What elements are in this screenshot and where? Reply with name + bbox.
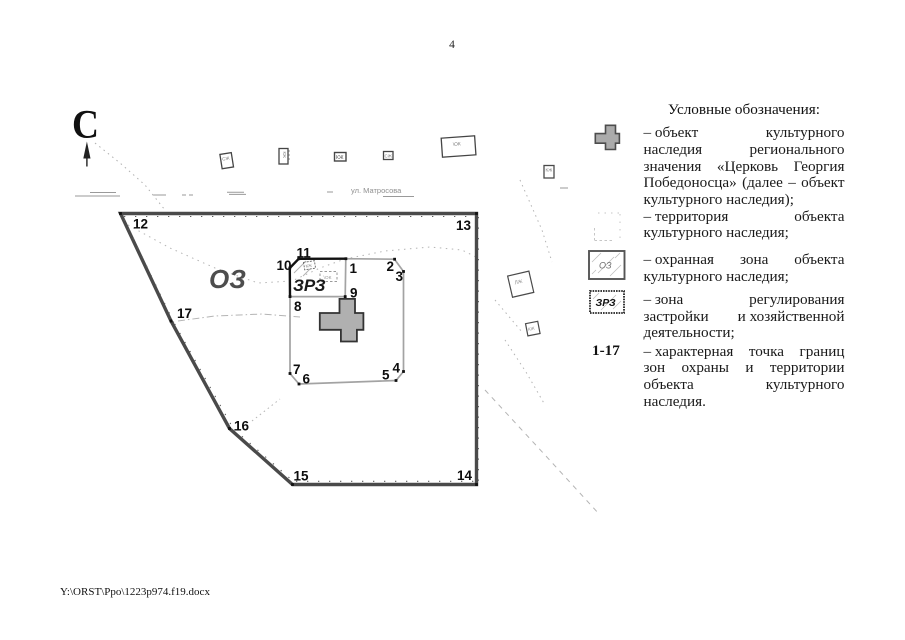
svg-text:\ОК: \ОК [453, 141, 461, 148]
svg-text:10: 10 [277, 258, 292, 273]
svg-text:ОЗ: ОЗ [209, 264, 246, 294]
svg-text:15: 15 [294, 469, 310, 484]
svg-text:11: 11 [297, 246, 312, 261]
svg-text:14: 14 [457, 468, 473, 483]
svg-text:4: 4 [393, 361, 401, 376]
svg-text:С: С [72, 102, 99, 147]
svg-text:8: 8 [294, 299, 302, 314]
svg-text:3: 3 [396, 269, 404, 284]
svg-text:ОЗ: ОЗ [599, 261, 612, 271]
svg-text:КЖ: КЖ [305, 263, 312, 269]
svg-text:13: 13 [456, 218, 472, 233]
svg-text:ул. Матросова: ул. Матросова [351, 186, 402, 195]
svg-text:9: 9 [350, 286, 358, 301]
svg-text:КЖ: КЖ [282, 152, 287, 158]
svg-text:17: 17 [177, 306, 192, 321]
svg-text:СЖ: СЖ [385, 154, 393, 159]
svg-text:1: 1 [350, 261, 358, 276]
svg-text:16: 16 [234, 419, 250, 434]
svg-text:12: 12 [133, 217, 148, 232]
svg-text:6: 6 [303, 372, 311, 387]
svg-text:7: 7 [293, 362, 301, 377]
svg-text:2: 2 [387, 259, 395, 274]
svg-text:КЖ: КЖ [546, 168, 554, 173]
svg-text:ЗРЗ: ЗРЗ [596, 297, 616, 309]
svg-text:ЗРЗ: ЗРЗ [293, 276, 326, 295]
svg-text:КЖ: КЖ [336, 155, 344, 161]
svg-text:5: 5 [382, 368, 390, 383]
